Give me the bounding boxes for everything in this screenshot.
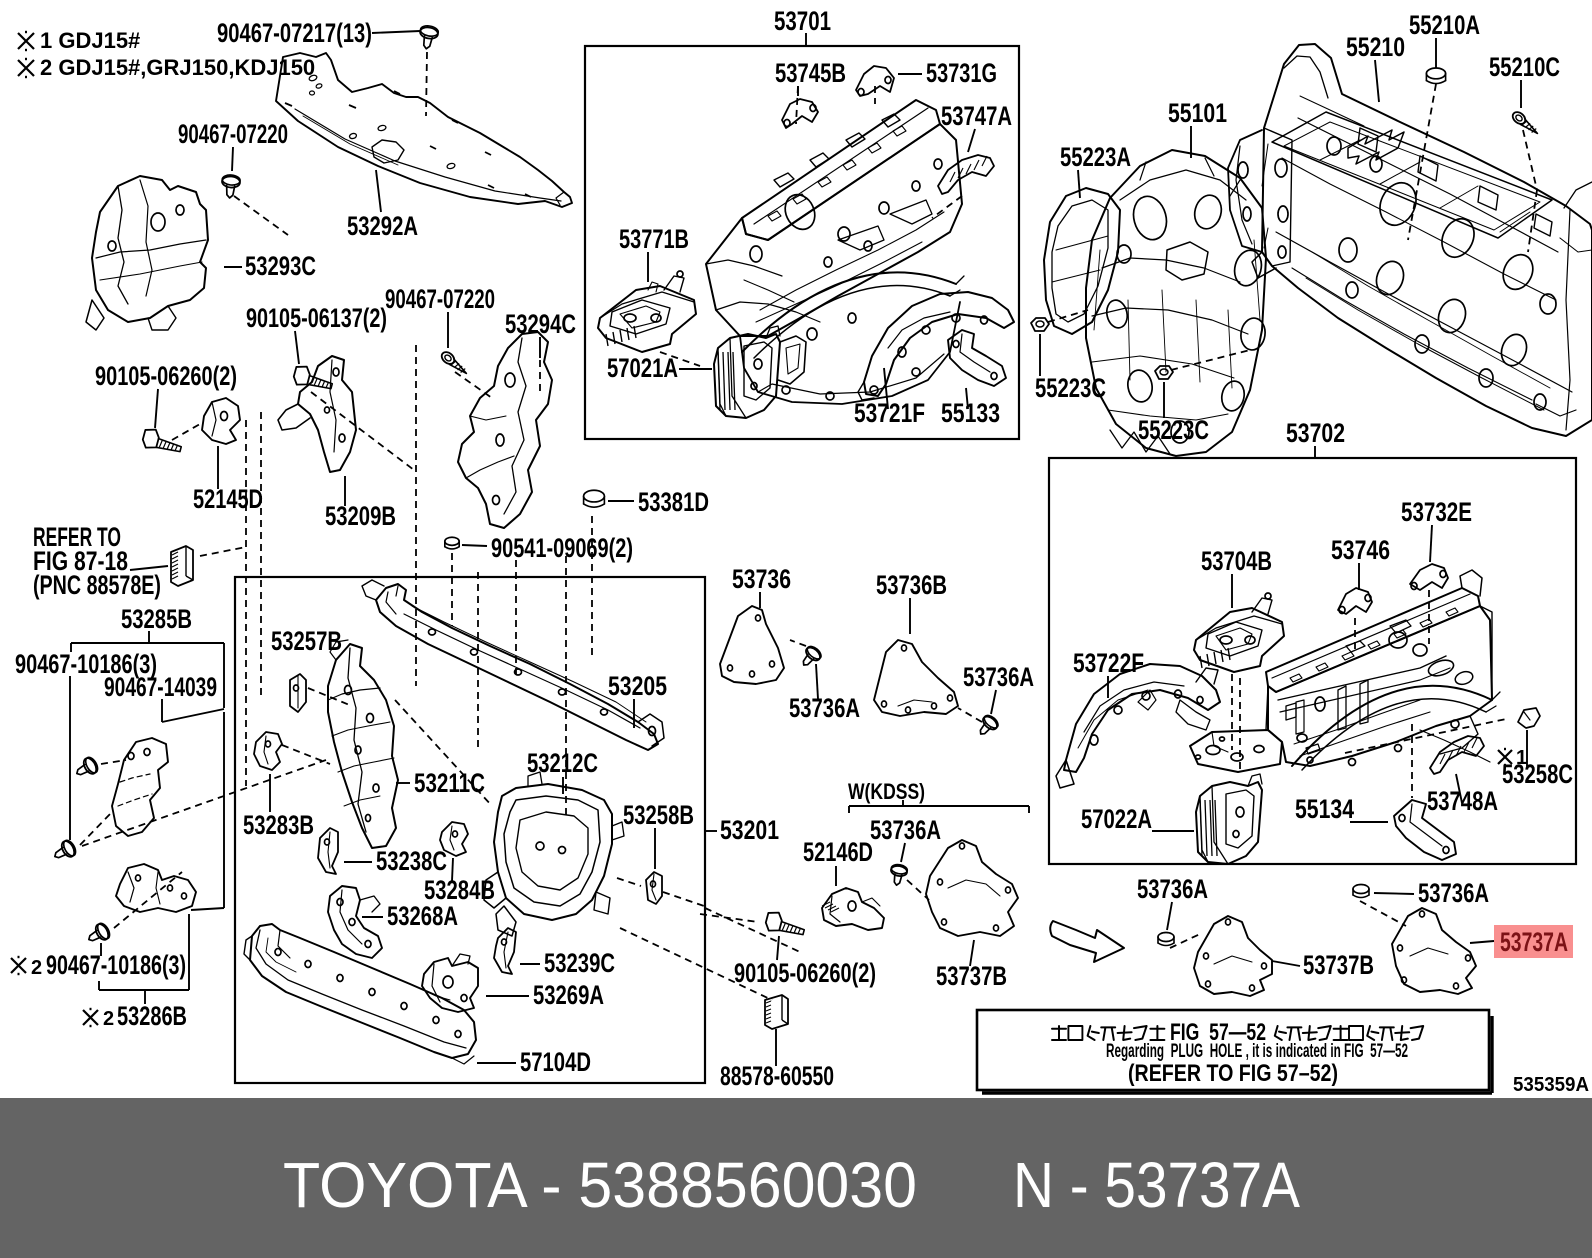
svg-text:55210: 55210 (1346, 32, 1405, 62)
svg-text:W(KDSS): W(KDSS) (848, 779, 925, 804)
svg-text:53283B: 53283B (243, 810, 314, 840)
svg-text:53702: 53702 (1286, 418, 1345, 448)
svg-text:53721F: 53721F (854, 398, 925, 428)
svg-text:53731G: 53731G (926, 58, 997, 88)
svg-text:53745B: 53745B (775, 58, 846, 88)
svg-text:90467-07220: 90467-07220 (385, 284, 495, 314)
svg-text:53209B: 53209B (325, 501, 396, 531)
svg-text:53285B: 53285B (121, 604, 192, 634)
svg-text:57104D: 57104D (520, 1047, 591, 1077)
svg-text:55101: 55101 (1168, 98, 1227, 128)
svg-text:55210C: 55210C (1489, 52, 1560, 82)
svg-text:53736A: 53736A (1137, 874, 1208, 904)
svg-text:55223A: 55223A (1060, 142, 1131, 172)
svg-text:Regarding PLUG HOLE , it is: Regarding PLUG HOLE , it is indicated in… (1106, 1041, 1408, 1062)
svg-text:1: 1 (1516, 747, 1527, 769)
svg-text:90541-09069(2): 90541-09069(2) (491, 533, 633, 563)
svg-text:(REFER TO FIG 57–52): (REFER TO FIG 57–52) (1128, 1060, 1338, 1087)
svg-text:53201: 53201 (720, 815, 779, 845)
svg-text:2 GDJ15#,GRJ150,KDJ150: 2 GDJ15#,GRJ150,KDJ150 (40, 55, 315, 80)
svg-text:53746: 53746 (1331, 535, 1390, 565)
svg-text:53212C: 53212C (527, 748, 598, 778)
svg-text:90467-14039: 90467-14039 (104, 672, 217, 702)
svg-text:53211C: 53211C (414, 768, 485, 798)
svg-text:53747A: 53747A (941, 101, 1012, 131)
svg-text:53736A: 53736A (963, 662, 1034, 692)
svg-text:57021A: 57021A (607, 353, 678, 383)
svg-text:2: 2 (103, 1008, 114, 1030)
svg-text:53269A: 53269A (533, 980, 604, 1010)
svg-text:53732E: 53732E (1401, 497, 1472, 527)
svg-text:53381D: 53381D (638, 487, 709, 517)
svg-text:52145D: 52145D (193, 484, 263, 514)
svg-text:90105-06260(2): 90105-06260(2) (95, 361, 237, 391)
svg-text:53704B: 53704B (1201, 546, 1272, 576)
svg-text:55210A: 55210A (1409, 10, 1480, 40)
svg-text:53286B: 53286B (117, 1001, 187, 1031)
svg-text:90105-06260(2): 90105-06260(2) (734, 958, 876, 988)
svg-text:53737A: 53737A (1500, 927, 1568, 957)
svg-text:535359A: 535359A (1513, 1074, 1589, 1096)
svg-text:53737B: 53737B (1303, 950, 1374, 980)
svg-text:53257B: 53257B (271, 626, 342, 656)
svg-text:53205: 53205 (608, 671, 667, 701)
svg-text:57022A: 57022A (1081, 804, 1152, 834)
svg-text:53292A: 53292A (347, 211, 418, 241)
svg-text:N - 53737A: N - 53737A (1013, 1149, 1300, 1221)
svg-text:53736: 53736 (732, 564, 791, 594)
svg-text:53258B: 53258B (623, 800, 694, 830)
svg-text:TOYOTA - 5388560030: TOYOTA - 5388560030 (283, 1149, 917, 1221)
svg-text:(PNC 88578E): (PNC 88578E) (33, 570, 161, 600)
svg-text:55134: 55134 (1295, 794, 1354, 824)
svg-text:2: 2 (31, 957, 42, 979)
svg-text:53239C: 53239C (544, 948, 615, 978)
svg-text:55133: 55133 (941, 398, 1000, 428)
svg-text:53268A: 53268A (387, 901, 458, 931)
svg-text:90467-07217(13): 90467-07217(13) (217, 18, 372, 48)
svg-text:53736A: 53736A (789, 693, 860, 723)
svg-text:1 GDJ15#: 1 GDJ15# (40, 28, 140, 53)
svg-text:53736A: 53736A (1418, 878, 1489, 908)
svg-text:53701: 53701 (774, 6, 831, 36)
svg-text:90467-10186(3): 90467-10186(3) (46, 950, 186, 980)
svg-text:90467-07220: 90467-07220 (178, 119, 288, 149)
svg-text:53736B: 53736B (876, 570, 947, 600)
svg-text:53771B: 53771B (619, 224, 689, 254)
svg-text:53258C: 53258C (1502, 759, 1573, 789)
svg-text:52146D: 52146D (803, 837, 873, 867)
svg-text:53722F: 53722F (1073, 648, 1144, 678)
svg-text:53736A: 53736A (870, 815, 941, 845)
svg-text:88578-60550: 88578-60550 (720, 1061, 834, 1091)
svg-text:53238C: 53238C (376, 846, 447, 876)
svg-text:53293C: 53293C (245, 251, 316, 281)
svg-text:53737B: 53737B (936, 961, 1007, 991)
svg-text:90105-06137(2): 90105-06137(2) (246, 303, 387, 333)
